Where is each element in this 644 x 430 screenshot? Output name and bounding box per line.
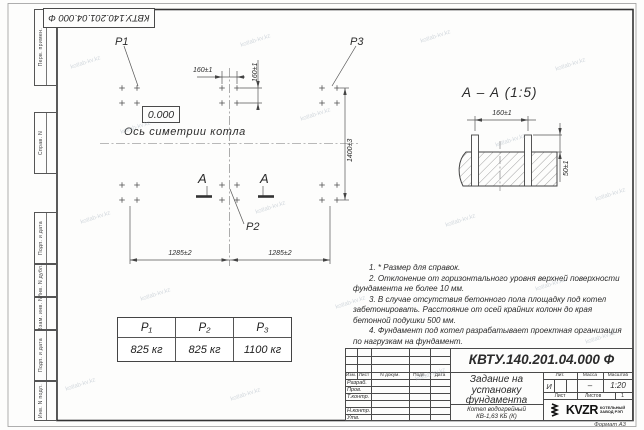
- title-block-line: [615, 392, 616, 399]
- load-table: Р₁ Р₂ Р₃ 825 кг 825 кг 1100 кг: [117, 317, 292, 362]
- lit-header: Лит.: [543, 373, 577, 378]
- title-block-line: [450, 348, 451, 421]
- load-table-value: 825 кг: [118, 338, 176, 361]
- margin-field-podp-data-1: Подп. и дата: [34, 212, 57, 264]
- lit-value: И: [543, 382, 555, 391]
- load-table-header-row: Р₁ Р₂ Р₃: [118, 318, 291, 338]
- title-block-line: [543, 399, 633, 400]
- rev-col-data: Дата: [430, 373, 450, 378]
- load-table-value: 825 кг: [176, 338, 234, 361]
- load-point-p3-label: P3: [350, 36, 363, 48]
- anchor-bolt-right: [525, 135, 532, 186]
- title-block-line: [345, 386, 450, 387]
- load-table-value-row: 825 кг 825 кг 1100 кг: [118, 338, 291, 361]
- title-block-line: [409, 348, 410, 421]
- title-block-line: [430, 348, 431, 421]
- mass-value: –: [577, 381, 603, 390]
- company-subtitle: КОТЕЛЬНЫЙ ЗАВОД РЭП: [600, 406, 625, 415]
- load-table-value: 1100 кг: [234, 338, 291, 361]
- margin-field-sprav-n: Справ. N: [34, 112, 57, 174]
- elevation-value: 0.000: [143, 109, 179, 121]
- margin-field-label: Инв. N подл.: [35, 382, 47, 420]
- section-view: [459, 135, 557, 191]
- title-block-line: [345, 379, 450, 380]
- margin-field-podp-data-2: Подп. и дата: [34, 330, 57, 381]
- title-block-line: [450, 404, 543, 405]
- sign-row-utv: Утв.: [347, 415, 360, 421]
- section-title: А – А (1:5): [462, 85, 538, 100]
- drawing-sheet: Перв. примен. Справ. N Подп. и дата Инв.…: [0, 0, 644, 430]
- notes-block: 1. * Размер для справок. 2. Отклонение о…: [353, 263, 629, 347]
- top-designation-text: КВТУ.140.201.04.000 Ф: [44, 12, 154, 23]
- margin-field-inv-podl: Инв. N подл.: [34, 381, 57, 421]
- note-2: 2. Отклонение от горизонтального уровня …: [353, 274, 629, 295]
- margin-field-label: Взам. инв. N: [35, 298, 47, 329]
- kvzr-logo-mark-icon: [551, 403, 564, 417]
- dim-160-vertical: 160±1: [252, 56, 259, 82]
- title-block-line: [603, 372, 604, 392]
- section-dim-160: 160±1: [487, 110, 517, 117]
- title-block-line: [345, 414, 450, 415]
- title-block-line: [371, 348, 372, 421]
- title-block-line: [554, 379, 555, 392]
- load-table-header: Р₃: [234, 318, 291, 338]
- kvzr-logo-text: KVZR: [566, 403, 598, 417]
- title-block-line: [345, 372, 633, 373]
- title-block-line: [543, 379, 633, 380]
- top-designation-stamp: КВТУ.140.201.04.000 Ф: [43, 8, 155, 28]
- title-block-line: [345, 407, 450, 408]
- margin-field-vzam-inv: Взам. инв. N: [34, 297, 57, 330]
- margin-field-label: Справ. N: [35, 113, 47, 173]
- product-name-line1: Котел водогрейный: [452, 406, 541, 413]
- title-block-line: [543, 392, 633, 393]
- margin-field-label: Подп. и дата: [35, 213, 47, 263]
- title-block-designation: КВТУ.140.201.04.000 Ф: [450, 352, 633, 367]
- title-block-line: [543, 372, 544, 421]
- doc-title: Задание на установку фундамента: [452, 375, 541, 407]
- title-block-line: [345, 364, 450, 365]
- section-cut-letter-left: А: [198, 171, 207, 186]
- title-block-line: [345, 393, 450, 394]
- title-block-line: [345, 356, 450, 357]
- note-4: 4. Фундамент под котел разрабатывает про…: [353, 326, 629, 347]
- load-point-p2-label: P2: [246, 221, 259, 233]
- load-table-header: Р₂: [176, 318, 234, 338]
- company-subtitle-line2: ЗАВОД РЭП: [600, 410, 625, 414]
- margin-field-label: Инв. N дубл.: [35, 265, 47, 296]
- elevation-mark-box: 0.000: [142, 106, 180, 123]
- title-block-line: [566, 379, 567, 392]
- company-logo: KVZR КОТЕЛЬНЫЙ ЗАВОД РЭП: [545, 401, 631, 419]
- rev-col-list: Лист: [357, 373, 371, 378]
- symmetry-axis-label: Ось симетрии котла: [124, 126, 246, 138]
- dim-1285-right: 1285±2: [262, 250, 298, 257]
- section-cut-letter-right: А: [260, 171, 269, 186]
- rev-col-izm: Изм.: [345, 373, 357, 378]
- load-point-p1-label: P1: [115, 36, 128, 48]
- margin-field-inv-dubl: Инв. N дубл.: [34, 264, 57, 297]
- dim-160-horizontal: 160±1: [193, 67, 212, 74]
- product-name-line2: КВ-1,63 КБ (К): [452, 413, 541, 420]
- title-block-line: [577, 372, 578, 399]
- format-note: Формат А3: [586, 422, 634, 428]
- dim-1285-left: 1285±2: [162, 250, 198, 257]
- rev-col-ndoc: N докум.: [371, 373, 409, 378]
- dim-1400: 1400±3: [347, 128, 354, 162]
- title-block-line: [357, 348, 358, 379]
- anchor-bolt-left: [472, 135, 479, 186]
- note-1: 1. * Размер для справок.: [353, 263, 629, 274]
- rev-col-podp: Подп.: [409, 373, 430, 378]
- scale-value: 1:20: [603, 381, 633, 390]
- margin-field-label: Подп. и дата: [35, 331, 47, 380]
- load-table-header: Р₁: [118, 318, 176, 338]
- note-3: 3. В случае отсутствия бетонного пола пл…: [353, 295, 629, 327]
- section-dim-50: 50±1: [563, 152, 570, 176]
- title-block-line: [345, 400, 450, 401]
- mass-header: Масса: [577, 373, 603, 378]
- scale-header: Масштаб: [603, 373, 633, 378]
